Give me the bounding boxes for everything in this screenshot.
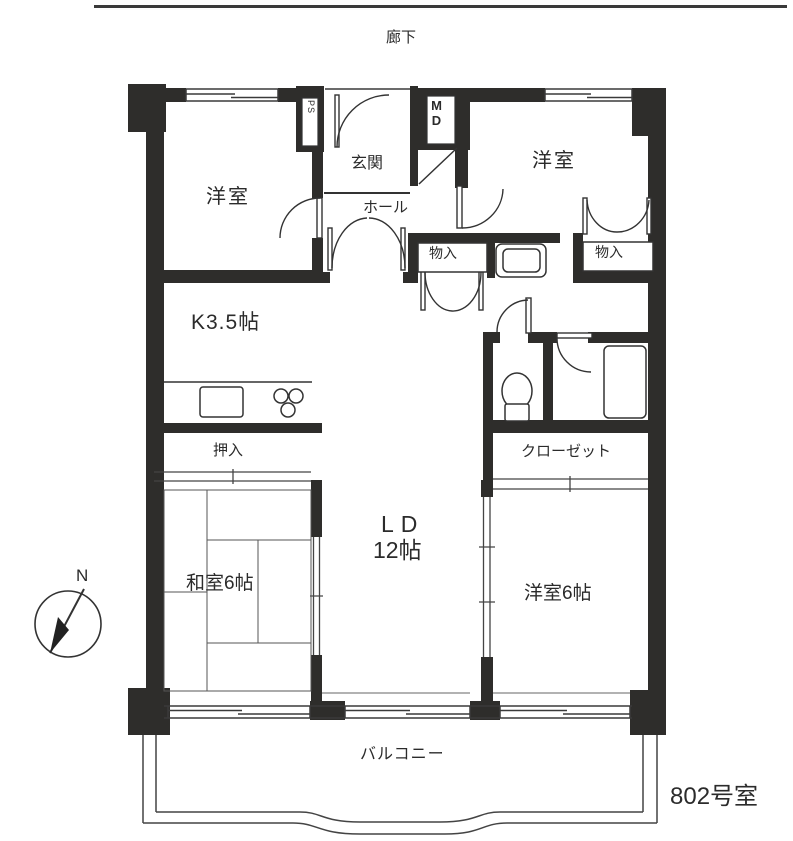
- closet-label: クローゼット: [521, 444, 611, 461]
- pipe-space-label: PS: [301, 100, 315, 146]
- compass-north-label: N: [76, 567, 88, 586]
- western-room-label: 洋室6帖: [524, 584, 592, 605]
- balcony-label: バルコニー: [360, 746, 445, 764]
- bathtub-icon: [604, 346, 646, 418]
- toilet-door-leaf: [526, 298, 531, 333]
- toilet-door-arc: [497, 300, 528, 332]
- room-top-right-label: 洋室: [532, 150, 576, 172]
- kitchen-label: K3.5帖: [191, 311, 260, 334]
- entrance-door-arc: [337, 95, 389, 147]
- bath-door-arc: [557, 338, 591, 372]
- top-rule: [94, 5, 787, 8]
- closet-slider: [493, 476, 648, 492]
- room-top-left-label: 洋室: [206, 186, 250, 208]
- room2-door-leaf: [457, 186, 462, 228]
- bath-door-leaf: [557, 333, 592, 338]
- toilet-icon: [502, 373, 532, 421]
- oshiire-fusuma: [154, 469, 311, 484]
- floor-plan-drawing: [0, 0, 793, 841]
- living-dining-size-label: 12帖: [373, 538, 422, 563]
- room2-door-arc: [462, 189, 503, 228]
- compass-north-icon: [35, 589, 101, 657]
- oshiire-label: 押入: [213, 443, 243, 460]
- meter-box-label: MD: [430, 98, 443, 144]
- storage-left-label: 物入: [429, 246, 457, 261]
- storage-left-door-arcs: [425, 272, 481, 311]
- storage-right-label: 物入: [595, 245, 623, 260]
- room1-door-arc: [280, 198, 320, 238]
- hall-label: ホール: [363, 200, 408, 217]
- hall-double-door-arcs: [332, 218, 405, 268]
- japanese-room-label: 和室6帖: [186, 574, 254, 595]
- room1-door-leaf: [317, 198, 322, 238]
- floor-plan-page: 廊下 洋室 洋室 玄関 ホール PS MD 物入 物入 K3.5帖 押入 クロー…: [0, 0, 793, 841]
- md-diagonal: [419, 148, 457, 184]
- storage-right-door-arcs: [587, 200, 649, 232]
- unit-number-label: 802号室: [670, 784, 758, 810]
- kitchen-sink-icon: [200, 387, 243, 417]
- gas-stove-icon: [274, 389, 303, 417]
- ld-west3-slider: [479, 497, 495, 657]
- corridor-label: 廊下: [386, 30, 416, 47]
- living-dining-label: LD: [381, 512, 424, 537]
- entrance-label: 玄関: [351, 155, 383, 173]
- washitsu-ld-fusuma: [310, 537, 323, 655]
- washing-machine-pan-icon: [496, 244, 546, 277]
